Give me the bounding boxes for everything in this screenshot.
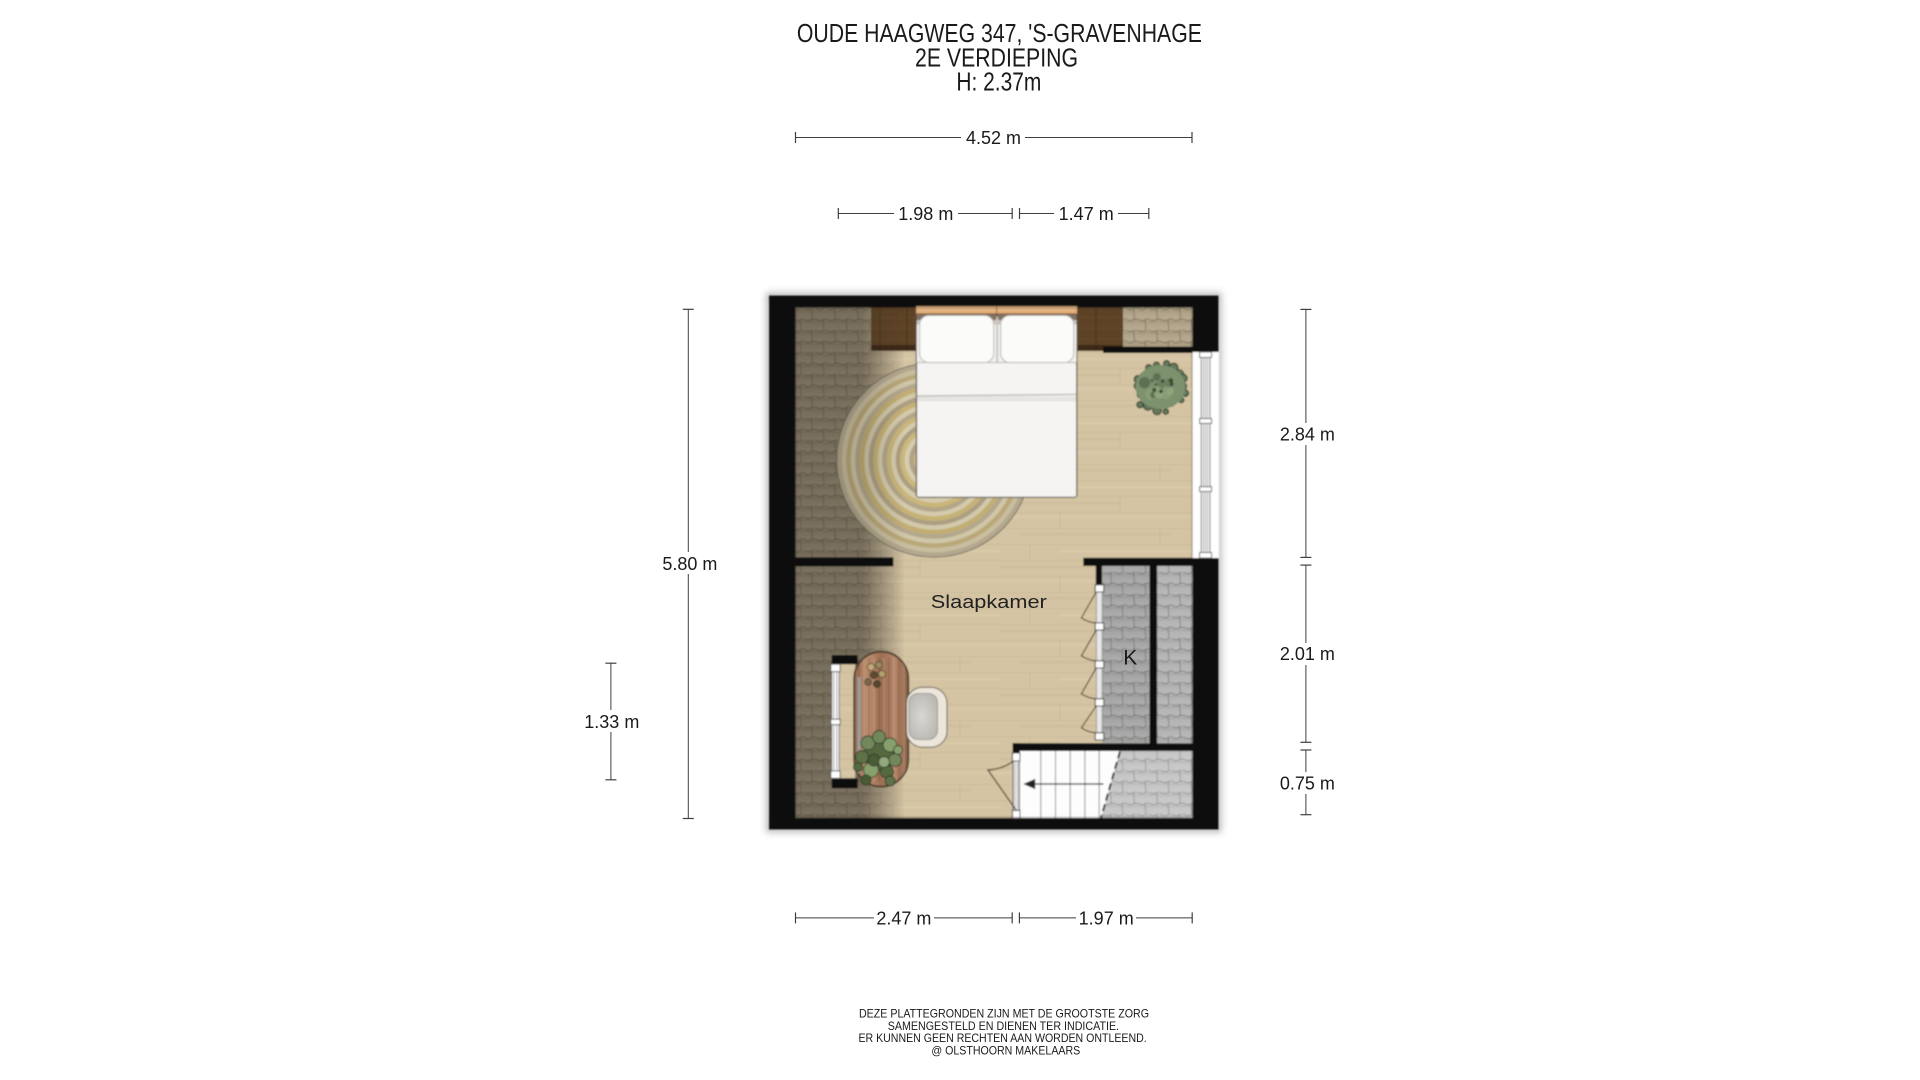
svg-text:1.47 m: 1.47 m	[1059, 204, 1114, 224]
svg-text:1.33 m: 1.33 m	[584, 712, 639, 732]
svg-text:1.97 m: 1.97 m	[1079, 908, 1134, 928]
svg-text:2.84 m: 2.84 m	[1280, 425, 1335, 445]
svg-text:2.47 m: 2.47 m	[876, 908, 931, 928]
svg-text:2.01 m: 2.01 m	[1280, 644, 1335, 664]
svg-text:5.80 m: 5.80 m	[662, 554, 717, 574]
svg-text:@ OLSTHOORN MAKELAARS: @ OLSTHOORN MAKELAARS	[931, 1043, 1080, 1057]
svg-text:H: 2.37m: H: 2.37m	[956, 67, 1041, 97]
svg-text:1.98 m: 1.98 m	[898, 204, 953, 224]
svg-text:0.75 m: 0.75 m	[1280, 774, 1335, 794]
svg-text:4.52 m: 4.52 m	[966, 128, 1021, 148]
svg-text:K: K	[1123, 647, 1137, 670]
svg-text:Slaapkamer: Slaapkamer	[931, 592, 1047, 612]
